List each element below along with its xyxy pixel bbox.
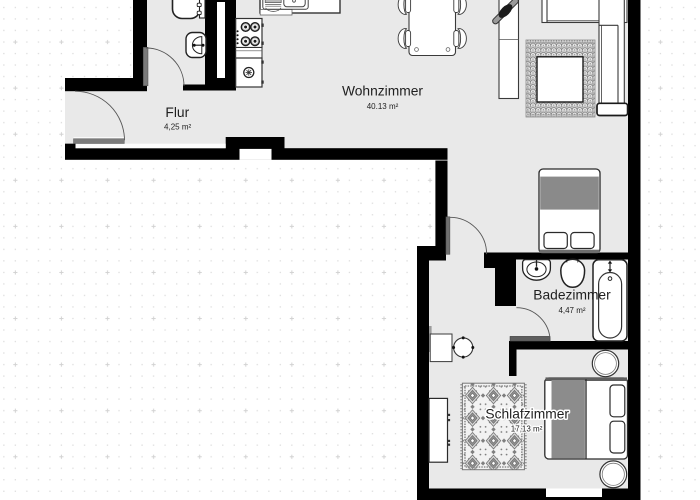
svg-text:40.13 m²: 40.13 m² xyxy=(367,102,399,111)
svg-text:Wohnzimmer: Wohnzimmer xyxy=(342,84,423,99)
svg-text:Flur: Flur xyxy=(165,105,189,120)
svg-text:4,25 m²: 4,25 m² xyxy=(164,122,191,131)
svg-text:Schlafzimmer: Schlafzimmer xyxy=(485,406,569,421)
svg-text:Badezimmer: Badezimmer xyxy=(533,288,611,303)
svg-text:4,47 m²: 4,47 m² xyxy=(558,306,585,315)
svg-text:17,13 m²: 17,13 m² xyxy=(511,424,543,433)
